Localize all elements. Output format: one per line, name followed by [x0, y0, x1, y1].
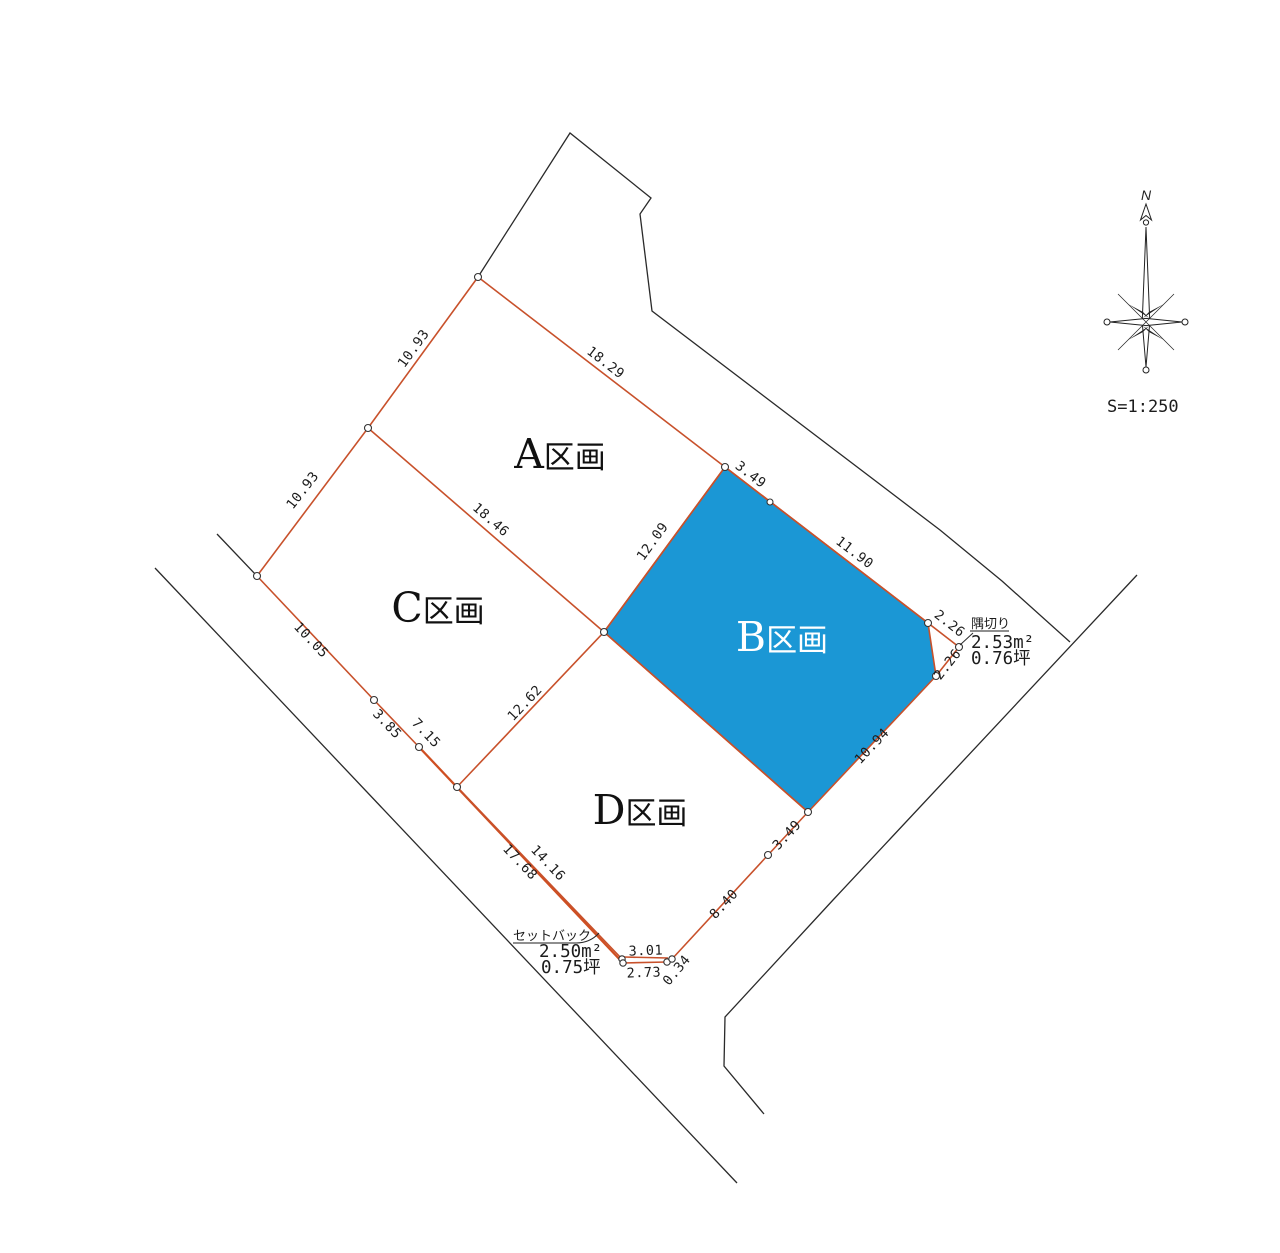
compass-rose: N [1104, 187, 1188, 373]
dim-d-se: 3.49 [769, 817, 804, 853]
plot-b-suffix: 区画 [766, 623, 828, 658]
compass-vertical-spike [1142, 227, 1150, 367]
dim-sw-385: 3.85 [369, 706, 404, 742]
survey-point [925, 620, 932, 627]
survey-point [365, 425, 372, 432]
survey-point [601, 629, 608, 636]
dim-cut-lower: 2.26 [931, 646, 965, 683]
plot-a-letter: A [513, 430, 545, 478]
plot-d-letter: D [593, 786, 626, 834]
dim-cut-upper: 2.26 [931, 607, 968, 641]
scale-text: S=1:250 [1107, 397, 1179, 417]
north-label: N [1141, 187, 1152, 203]
north-arrowhead-icon [1141, 204, 1152, 220]
site-plan-drawing: 10.93 10.93 18.29 18.46 12.09 3.49 11.90… [0, 0, 1280, 1253]
compass-node [1143, 220, 1148, 225]
parcel-edge-d-left [457, 632, 604, 787]
plot-c-letter: C [391, 584, 422, 632]
dim-c-sw: 10.05 [290, 619, 331, 661]
survey-point [371, 697, 378, 704]
dim-sw-715: 7.15 [408, 715, 443, 751]
plot-c-suffix: 区画 [423, 594, 485, 629]
west-neighbor-boundary [217, 534, 257, 576]
survey-point [765, 852, 772, 859]
corner-cut-area-tsubo: 0.76坪 [971, 649, 1031, 669]
setback-annotation: セットバック 2.50m² 0.75坪 [513, 928, 602, 978]
survey-point [454, 784, 461, 791]
dim-bottom-273: 2.73 [626, 964, 661, 981]
survey-point [620, 960, 626, 966]
plot-d-suffix: 区画 [625, 796, 687, 831]
compass-node [1182, 319, 1188, 325]
parcel-edge-a-left [368, 277, 478, 428]
plot-a-label: A区画 [513, 430, 606, 478]
survey-point [767, 499, 773, 505]
survey-point [254, 573, 261, 580]
plot-b-letter: B [736, 613, 766, 661]
compass-node [1143, 367, 1149, 373]
parcel-edge-c-left [257, 428, 368, 576]
survey-point [722, 464, 729, 471]
compass-node [1104, 319, 1110, 325]
dim-d-left: 12.62 [504, 682, 545, 724]
survey-point [416, 744, 423, 751]
dim-d-s: 8.40 [706, 886, 741, 922]
setback-area-tsubo: 0.75坪 [541, 958, 601, 978]
corner-cut-annotation: 隅切り 2.53m² 0.76坪 [960, 616, 1034, 669]
plot-a-suffix: 区画 [544, 440, 606, 475]
plot-c-label: C区画 [391, 584, 484, 632]
corner-cut-title: 隅切り [971, 616, 1010, 631]
site-plan-page: 10.93 10.93 18.29 18.46 12.09 3.49 11.90… [0, 0, 1280, 1253]
plot-d-label: D区画 [593, 786, 688, 834]
dim-c-left: 10.93 [283, 469, 322, 513]
survey-point [805, 809, 812, 816]
survey-point [475, 274, 482, 281]
bottom-edge-outer [623, 962, 667, 963]
dim-bottom-301: 3.01 [628, 942, 663, 959]
setback-title: セットバック [513, 928, 591, 943]
